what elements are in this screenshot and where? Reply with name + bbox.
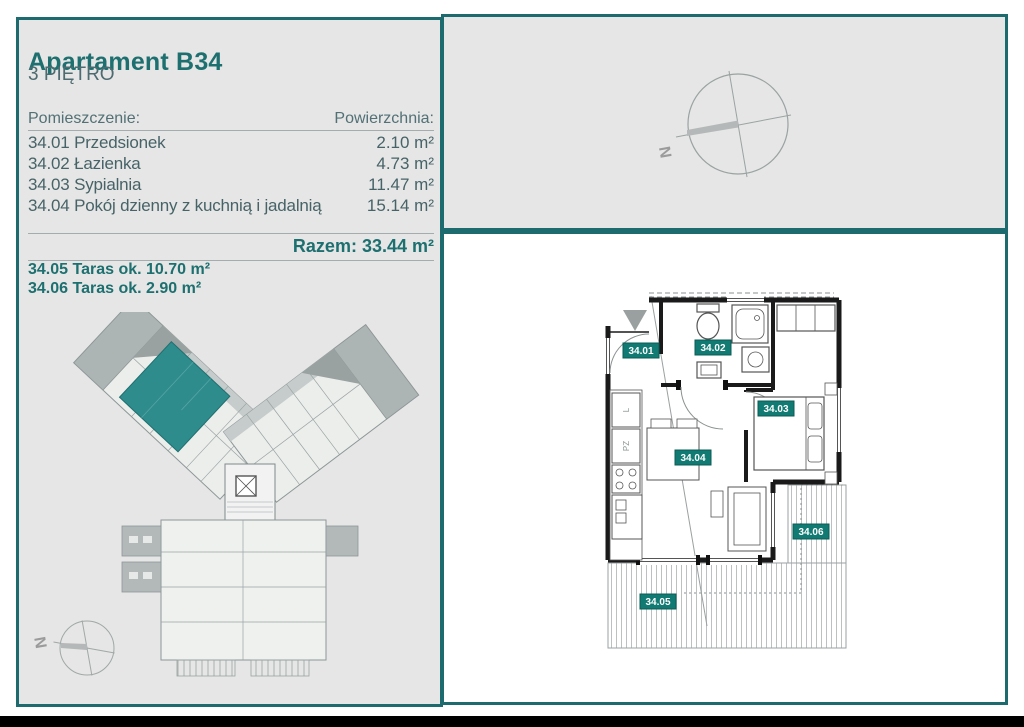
terrace-line: 34.06 Taras ok. 2.90 m²: [28, 279, 434, 298]
table-row: 34.02 Łazienka 4.73 m²: [28, 153, 434, 174]
table-row: 34.04 Pokój dzienny z kuchnią i jadalnią…: [28, 195, 434, 216]
room-badge-34-01: 34.01: [623, 343, 659, 358]
toilet-tank: [697, 304, 719, 312]
nightstand: [825, 472, 837, 484]
rooms-table-header: Pomieszczenie: Powierzchnia:: [28, 110, 434, 131]
terrace-list: 34.05 Taras ok. 10.70 m² 34.06 Taras ok.…: [28, 260, 434, 298]
coffee-table: [711, 491, 723, 517]
wardrobe: [777, 305, 835, 331]
room-label: 34.04 Pokój dzienny z kuchnią i jadalnią: [28, 195, 321, 216]
compass-panel: N: [441, 14, 1008, 231]
fridge-label: L: [622, 407, 631, 412]
rooms-table: 34.01 Przedsionek 2.10 m² 34.02 Łazienka…: [28, 132, 434, 216]
room-area: 4.73 m²: [376, 153, 434, 174]
svg-text:34.01: 34.01: [628, 346, 653, 357]
room-area: 15.14 m²: [367, 195, 434, 216]
room-badge-34-04: 34.04: [675, 450, 711, 465]
chair: [677, 419, 697, 428]
room-badge-34-02: 34.02: [695, 340, 731, 355]
terrace-line: 34.05 Taras ok. 10.70 m²: [28, 260, 434, 279]
room-area: 2.10 m²: [376, 132, 434, 153]
room-label: 34.01 Przedsionek: [28, 132, 165, 153]
room-badge-34-05: 34.05: [640, 594, 676, 609]
room-area: 11.47 m²: [368, 174, 434, 195]
table-row: 34.03 Sypialnia 11.47 m²: [28, 174, 434, 195]
site-compass-icon: N: [25, 604, 135, 694]
info-panel: Apartament B34 3 PIĘTRO Pomieszczenie: P…: [16, 17, 443, 707]
table-row: 34.01 Przedsionek 2.10 m²: [28, 132, 434, 153]
svg-text:34.06: 34.06: [798, 527, 823, 538]
svg-text:34.02: 34.02: [700, 343, 725, 354]
rooms-header-area: Powierzchnia:: [334, 110, 434, 128]
pillow: [808, 436, 822, 462]
svg-text:34.03: 34.03: [763, 404, 788, 415]
apartment-floorplan: L PZ 34.01 34.02 34.03 34.04: [444, 234, 1005, 702]
floor-label: 3 PIĘTRO: [28, 64, 115, 86]
building-lower-block: [122, 520, 358, 676]
entrance-arrow-icon: [623, 310, 647, 331]
room-label: 34.02 Łazienka: [28, 153, 141, 174]
north-compass-icon: N: [444, 17, 1005, 228]
dishwasher-label: PZ: [622, 441, 631, 451]
rooms-header-name: Pomieszczenie:: [28, 110, 140, 128]
svg-text:34.04: 34.04: [680, 453, 705, 464]
pillow: [808, 403, 822, 429]
nightstand: [825, 383, 837, 395]
room-label: 34.03 Sypialnia: [28, 174, 141, 195]
north-label: N: [657, 145, 676, 159]
page: Apartament B34 3 PIĘTRO Pomieszczenie: P…: [0, 0, 1024, 727]
building-core: [225, 464, 275, 520]
svg-text:34.05: 34.05: [645, 597, 670, 608]
total-area: Razem: 33.44 m²: [28, 233, 434, 261]
north-label: N: [32, 635, 51, 649]
toilet-bowl: [697, 313, 719, 339]
room-badge-34-06: 34.06: [793, 524, 829, 539]
room-badge-34-03: 34.03: [758, 401, 794, 416]
floorplan-panel: L PZ 34.01 34.02 34.03 34.04: [441, 231, 1008, 705]
stove: [612, 465, 640, 493]
bottom-bar: [0, 716, 1024, 727]
chair: [651, 419, 671, 428]
